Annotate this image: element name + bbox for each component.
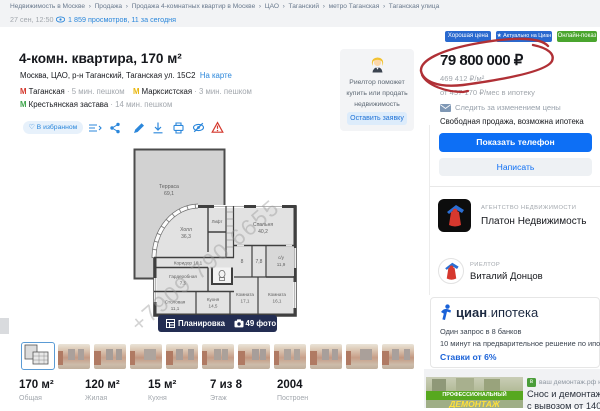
svg-text:11,9: 11,9 xyxy=(277,262,286,267)
svg-text:7,8: 7,8 xyxy=(256,259,263,265)
svg-text:Комната: Комната xyxy=(236,292,254,297)
svg-text:16,1: 16,1 xyxy=(273,299,282,304)
svg-text:Комната: Комната xyxy=(268,292,286,297)
svg-text:Лифт: Лифт xyxy=(212,219,223,224)
svg-text:8: 8 xyxy=(241,259,244,265)
svg-text:69,1: 69,1 xyxy=(164,191,174,197)
svg-text:14,5: 14,5 xyxy=(209,304,218,309)
svg-text:Кухня: Кухня xyxy=(207,297,220,302)
svg-text:Холл: Холл xyxy=(180,227,192,233)
svg-text:Терраса: Терраса xyxy=(159,184,179,190)
svg-text:17,1: 17,1 xyxy=(241,299,250,304)
svg-text:с/у: с/у xyxy=(278,255,285,260)
svg-text:36,3: 36,3 xyxy=(181,234,191,240)
